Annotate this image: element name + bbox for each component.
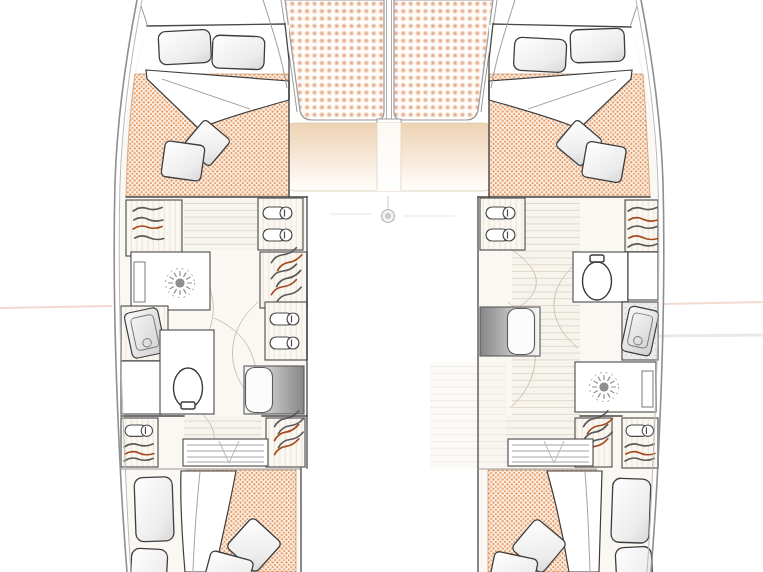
clothes-rail-end-icon — [270, 337, 299, 349]
clothes-rail-end-icon — [263, 207, 292, 219]
port-hull — [114, 0, 307, 572]
shower — [131, 252, 210, 310]
hanging-locker — [265, 302, 307, 360]
trampoline-port — [285, 0, 384, 120]
head-pillow — [611, 478, 651, 543]
cabinet — [628, 252, 658, 300]
wardrobe — [266, 418, 305, 467]
trampoline-starboard — [394, 0, 493, 120]
starboard-forward-cabin — [489, 25, 650, 196]
head-pillow — [129, 548, 168, 572]
cabinet — [121, 361, 161, 414]
head-pillow — [212, 35, 265, 70]
head-pillow — [570, 28, 625, 63]
clothes-rail-end-icon — [486, 229, 515, 241]
throw-pillow — [161, 140, 206, 181]
clothes-rail-end-icon — [626, 425, 654, 436]
clothes-rail-end-icon — [125, 425, 153, 436]
catamaran-floor-plan — [0, 0, 763, 572]
hanging-locker — [480, 198, 525, 250]
floor-plan-page — [0, 0, 763, 572]
hanging-locker — [258, 198, 303, 250]
head-pillow — [513, 37, 567, 73]
saloon-steps — [244, 366, 304, 414]
saloon-steps — [480, 307, 540, 356]
toilet-icon — [174, 368, 203, 409]
head-pillow — [158, 29, 212, 65]
port-forward-cabin — [126, 25, 289, 196]
anchor-locker-deck — [284, 123, 494, 191]
clothes-rail-end-icon — [270, 313, 299, 325]
clothes-rail-end-icon — [263, 229, 292, 241]
throw-pillow — [581, 141, 627, 183]
clothes-rail-end-icon — [486, 207, 515, 219]
foredeck — [281, 0, 497, 223]
companionway-steps — [184, 200, 258, 250]
saloon-floor — [430, 362, 506, 468]
head-pillow — [134, 477, 174, 542]
windlass-icon — [330, 196, 455, 223]
